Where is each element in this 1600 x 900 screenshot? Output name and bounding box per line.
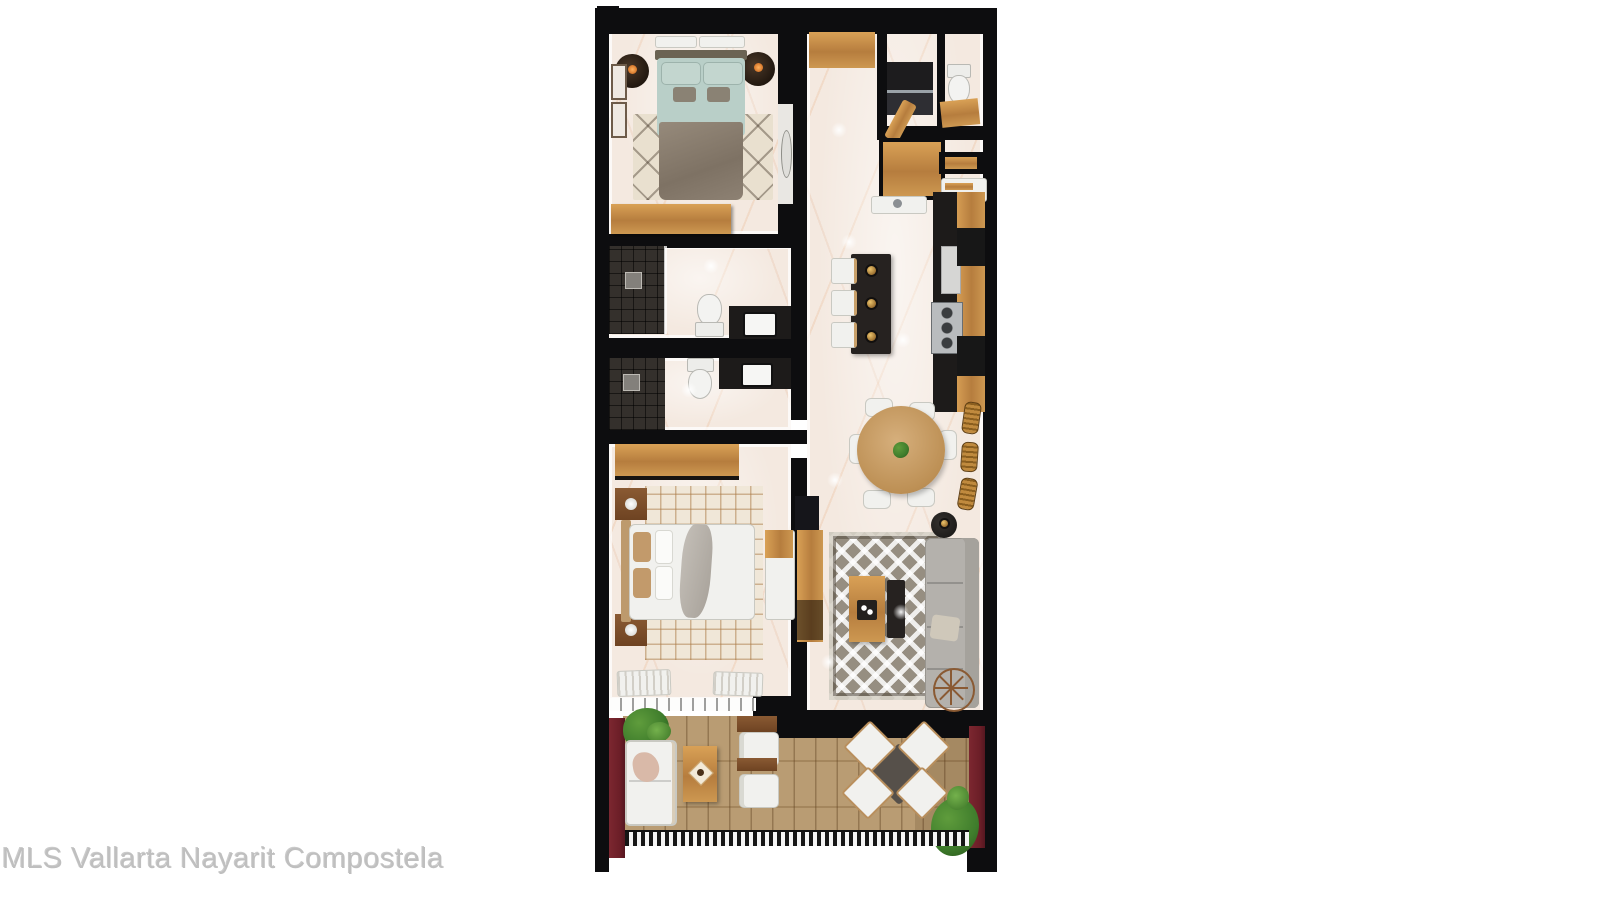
bedroom1-dresser — [611, 204, 731, 234]
bed1-pillow — [703, 62, 743, 85]
bed2-pillow-tan — [633, 568, 651, 598]
table-lamp — [754, 63, 763, 72]
wall-hall-laundry — [877, 28, 887, 128]
bathroom1-sink — [743, 312, 777, 337]
downlight-glow — [827, 472, 843, 488]
side-table-decor — [941, 520, 948, 527]
wall-art — [611, 102, 627, 138]
dining-chair — [863, 490, 891, 509]
wall-bedroom1-right-upper — [778, 28, 807, 104]
bed1-accent-pillow — [673, 87, 696, 102]
downlight-glow — [893, 604, 909, 620]
bar-stool — [831, 258, 857, 284]
bedroom2-bench-top — [765, 530, 793, 558]
wall-between-bathrooms — [609, 338, 807, 358]
wall-bottom-right-wedge — [967, 848, 997, 872]
niche-shelf — [945, 183, 973, 190]
downlight-glow — [703, 258, 719, 274]
downlight-glow — [831, 122, 847, 138]
toilet-tank — [695, 322, 724, 337]
wall-bathroom2-bedroom2 — [609, 430, 807, 444]
island-pendant-light — [867, 266, 876, 275]
table-lamp — [628, 65, 637, 74]
shower-drain — [625, 272, 642, 289]
wall-art — [611, 64, 627, 100]
ceiling-vent — [655, 36, 697, 48]
downlight-glow — [895, 332, 911, 348]
floor-plan — [595, 6, 997, 872]
sofa-pillow — [929, 614, 960, 642]
downlight-glow — [821, 654, 837, 670]
outdoor-side-table — [737, 716, 777, 732]
kitchen-faucet — [893, 199, 902, 208]
shower-drain — [623, 374, 640, 391]
folded-rug — [617, 669, 672, 697]
tv-console-shelf — [797, 600, 823, 640]
bedroom2-sliding-door — [610, 698, 756, 711]
tv — [795, 496, 819, 530]
terrace-wall-left — [609, 718, 625, 858]
terrace-railing — [625, 830, 969, 846]
coffee-table-tray — [857, 600, 877, 620]
entry-closet — [809, 32, 875, 68]
watermark: MLS Vallarta Nayarit Compostela — [2, 843, 444, 876]
bed1-comforter — [659, 122, 743, 200]
page: { "watermark": { "text": "MLS Vallarta N… — [0, 0, 1600, 900]
powder-vanity — [940, 98, 981, 128]
hall-closet-box — [879, 138, 945, 200]
downlight-glow — [681, 382, 697, 398]
bed2-pillow-tan — [633, 532, 651, 562]
bathroom2-sink — [741, 363, 773, 387]
outdoor-table-cup — [697, 769, 704, 776]
island-pendant-light — [867, 332, 876, 341]
wall-bedroom1-closet-back — [793, 104, 807, 204]
downlight-glow — [841, 234, 857, 250]
table-lamp — [625, 624, 637, 636]
ceiling-vent — [699, 36, 745, 48]
bar-stool — [831, 290, 857, 316]
table-lamp — [625, 498, 637, 510]
bathroom1-shower — [609, 246, 665, 334]
sofa-cushion-seam — [927, 582, 963, 584]
kitchen-cabinet-dark — [957, 228, 985, 266]
bar-stool — [831, 322, 857, 348]
wheel-decor — [933, 668, 975, 712]
bedroom2-closet — [615, 444, 739, 480]
shower-glass — [664, 246, 667, 334]
outdoor-armchair — [739, 774, 779, 808]
bed2-pillow — [655, 566, 673, 600]
bed1-accent-pillow — [707, 87, 730, 102]
folded-rug — [713, 671, 764, 697]
wall-bathzone-right — [791, 248, 807, 420]
bed2-pillow — [655, 530, 673, 564]
outdoor-side-table — [737, 758, 777, 771]
wall-left — [595, 8, 609, 872]
bed1-pillow — [661, 62, 701, 85]
island-pendant-light — [867, 299, 876, 308]
wardrobe-mirror — [781, 130, 792, 178]
kitchen-cabinet-dark — [957, 336, 985, 376]
niche-shelf — [945, 157, 977, 169]
bathroom2-shower — [609, 358, 665, 430]
wall-basket-decor — [960, 441, 979, 472]
outdoor-sofa — [625, 740, 677, 826]
